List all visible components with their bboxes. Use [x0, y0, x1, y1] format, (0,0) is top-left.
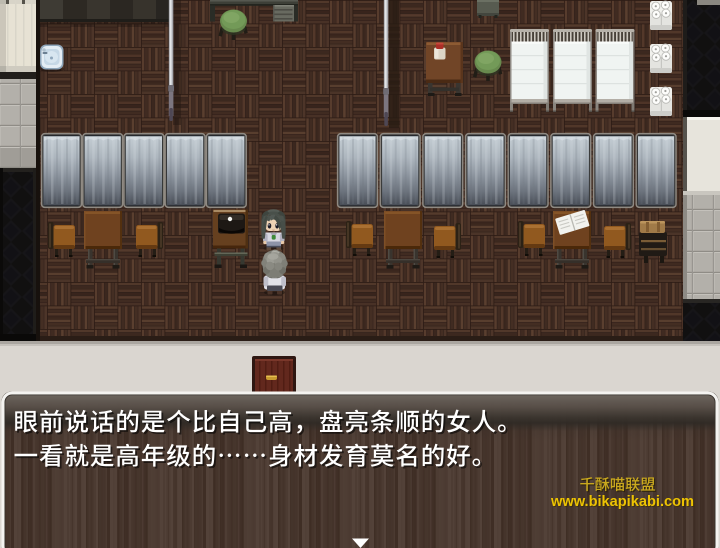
- svg-text:www.bikapikabi.com: www.bikapikabi.com: [550, 494, 694, 510]
